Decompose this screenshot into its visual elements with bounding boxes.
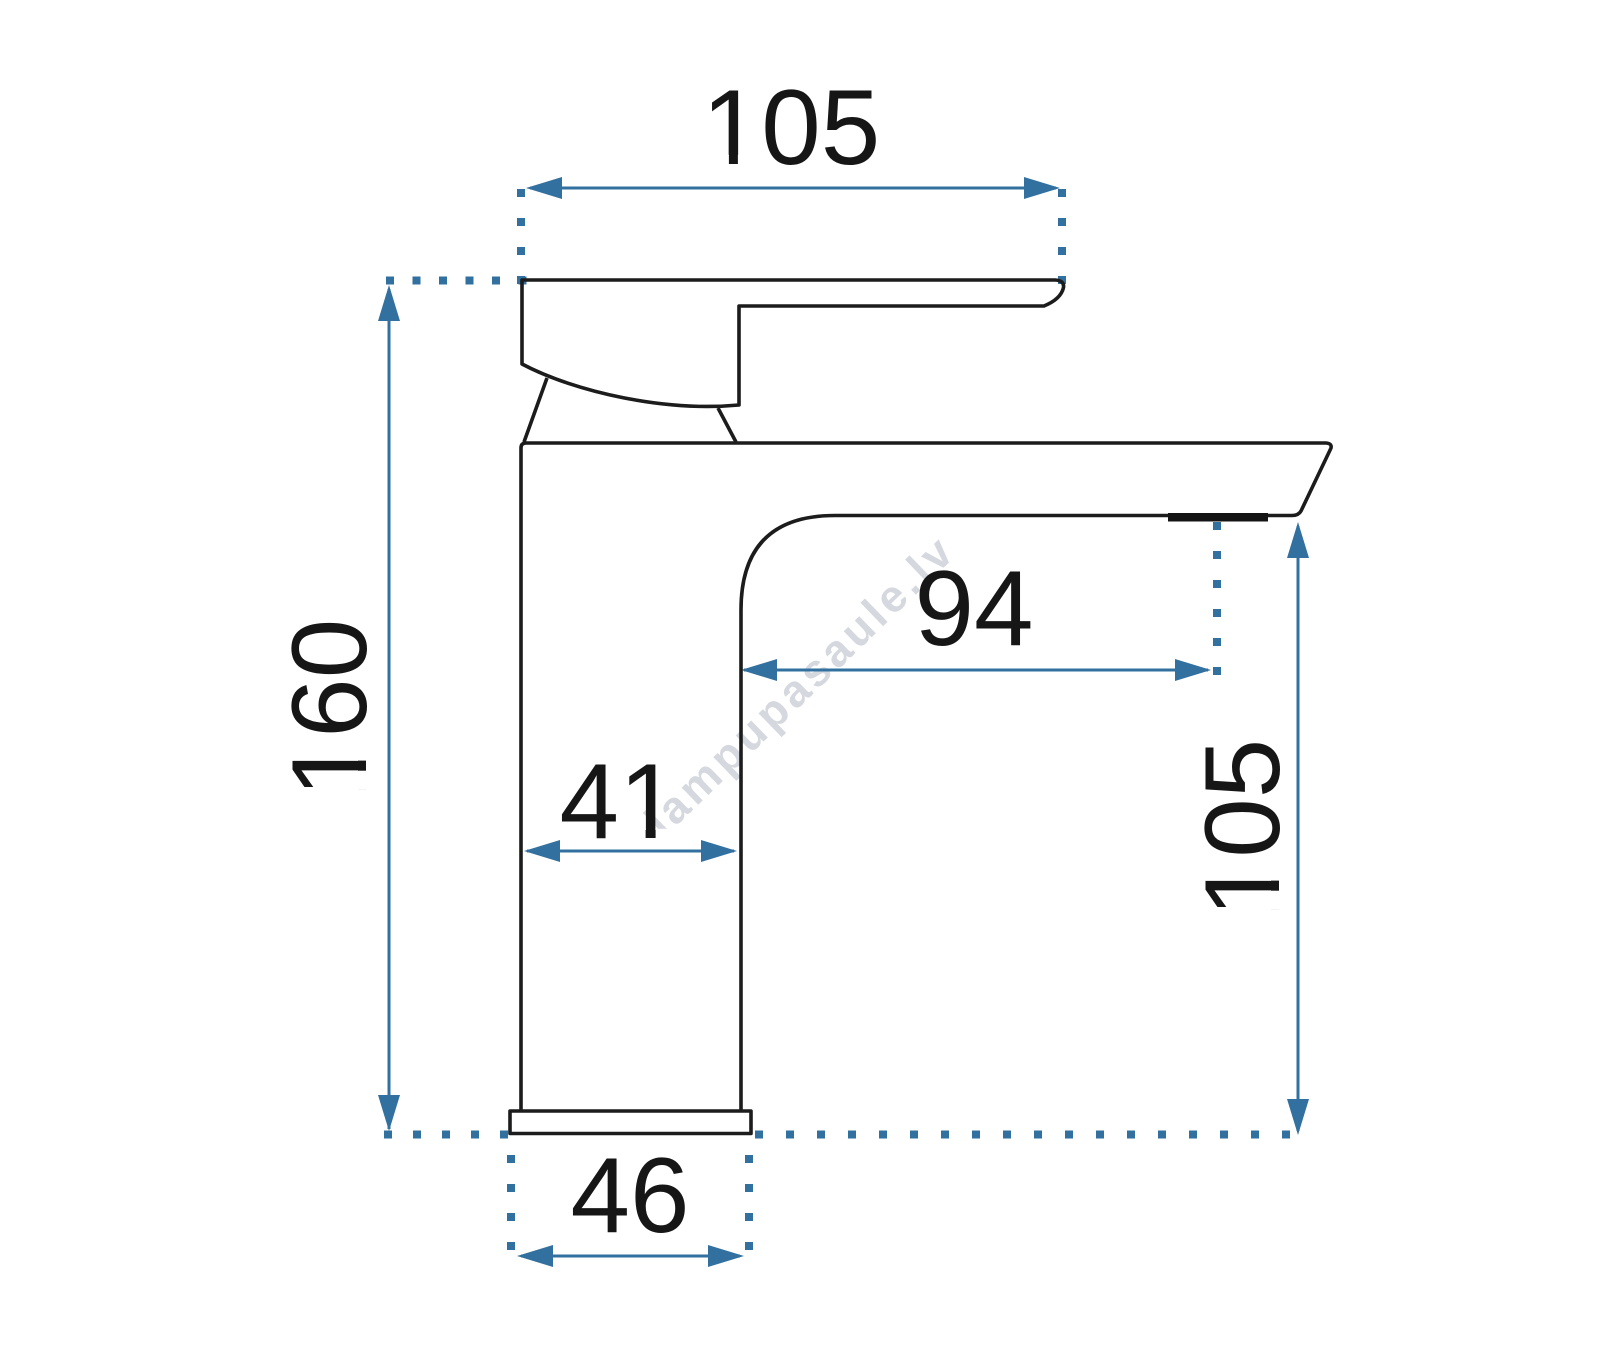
svg-text:94: 94 (914, 548, 1033, 668)
svg-text:160: 160 (269, 619, 389, 798)
svg-text:105: 105 (702, 67, 881, 187)
svg-text:41: 41 (559, 741, 678, 861)
svg-text:105: 105 (1182, 739, 1302, 918)
svg-text:46: 46 (570, 1135, 689, 1255)
